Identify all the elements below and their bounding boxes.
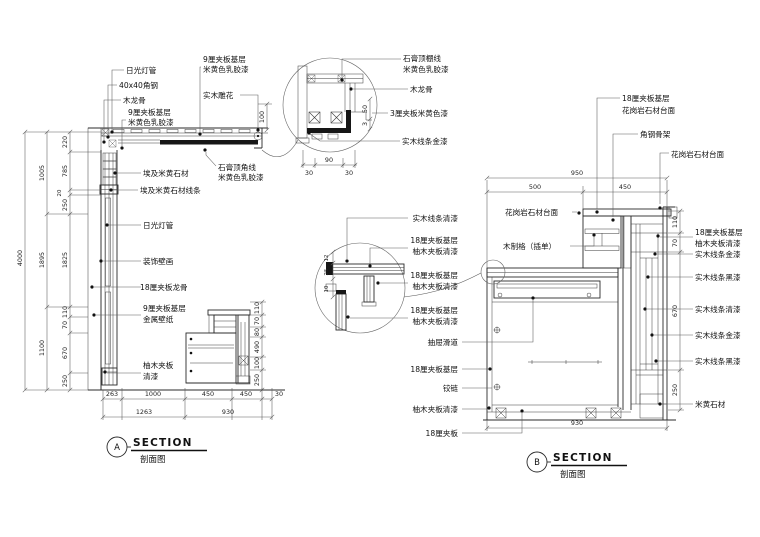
dim-1100: 1100 xyxy=(38,340,46,356)
section-b-subtitle: 剖面图 xyxy=(560,469,586,480)
callout-gypsum-corner-1: 石膏顶角线 xyxy=(218,162,256,172)
callout-gypsum-ceiling-line-1: 石膏顶棚线 xyxy=(403,53,441,63)
dim-detail-30a: 30 xyxy=(305,169,313,177)
callout-b-r-molding-black-2: 实木线条黑漆 xyxy=(695,356,741,366)
callout-clear-varnish: 清漆 xyxy=(143,371,159,381)
callout-plywood9-1a: 9厘夹板基层 xyxy=(128,107,171,117)
callout-b-granite-top-right: 花岗岩石材台面 xyxy=(671,149,725,159)
callout-b-r-teak-clear: 柚木夹板清漆 xyxy=(695,238,741,248)
callout-b-plywood18-granite-2: 花岗岩石材台面 xyxy=(622,105,676,115)
dim-b-250: 250 xyxy=(671,384,679,396)
callout-egypt-stone-trim: 埃及米黄石材线条 xyxy=(140,185,201,195)
dim-263: 263 xyxy=(106,390,118,398)
section-a-bubble-letter: A xyxy=(114,443,120,453)
callout-plywood9-3a: 9厘夹板基层 xyxy=(143,303,186,313)
dim-450-b: 450 xyxy=(240,390,252,398)
gypsum-cove-band xyxy=(160,140,258,145)
callout-b-r-beige-stone: 米黄石材 xyxy=(695,399,726,409)
callout-b-teak-clear: 柚木夹板清漆 xyxy=(412,404,458,414)
callout-b-granite-top-left: 花岗岩石材台面 xyxy=(505,207,559,217)
callout-plywood9-2b: 米黄色乳胶漆 xyxy=(203,64,249,74)
callout-angle-steel: 40x40角钢 xyxy=(119,80,158,90)
dim-cab-490: 490 xyxy=(253,341,261,353)
dim-cab-80: 80 xyxy=(253,328,261,336)
dim-20: 20 xyxy=(57,189,63,196)
callout-b-r-molding-gold-2: 实木线条金漆 xyxy=(695,330,741,340)
callout-egypt-stone: 埃及米黄石材 xyxy=(143,168,189,178)
callout-b-plywood18-teak-2b: 柚木夹板清漆 xyxy=(412,281,458,291)
callout-fluorescent-lamp: 日光灯管 xyxy=(126,65,157,75)
dim-1825: 1825 xyxy=(61,252,69,268)
dim-930-b: 930 xyxy=(571,419,583,427)
dim-930-a: 930 xyxy=(222,408,234,416)
dim-detail-b-10: 10 xyxy=(324,285,330,292)
dim-500: 500 xyxy=(529,183,541,191)
dim-1000: 1000 xyxy=(145,390,161,398)
technical-drawing-page: 4000 1005 1895 1100 220 785 20 250 1825 … xyxy=(0,0,760,537)
dim-detail-b-25: 25 xyxy=(324,269,330,276)
dim-total-4000: 4000 xyxy=(16,250,24,266)
callout-b-wood-molding-clear: 实木线条清漆 xyxy=(412,213,458,223)
dim-220: 220 xyxy=(61,136,69,148)
section-a-title: SECTION xyxy=(133,437,193,449)
callout-plywood3-beige: 3厘夹板米黄色漆 xyxy=(390,108,448,118)
dim-250-upper: 250 xyxy=(61,199,69,211)
dim-1263: 1263 xyxy=(136,408,152,416)
callout-plywood9-2a: 9厘夹板基层 xyxy=(203,54,246,64)
dim-b-670: 670 xyxy=(671,305,679,317)
callout-b-plywood18-teak-3a: 18厘夹板基层 xyxy=(410,305,458,315)
callout-wood-keel-detail: 木龙骨 xyxy=(410,84,433,94)
section-a-subtitle: 剖面图 xyxy=(140,454,166,465)
dim-detail-b-12: 12 xyxy=(324,255,330,262)
dim-1005: 1005 xyxy=(38,165,46,181)
dim-250-wall: 250 xyxy=(61,375,69,387)
callout-wood-keel: 木龙骨 xyxy=(123,95,146,105)
dim-30: 30 xyxy=(275,390,283,398)
dim-450: 450 xyxy=(619,183,631,191)
dim-950: 950 xyxy=(571,169,583,177)
dim-450-a: 450 xyxy=(202,390,214,398)
callout-teak-plywood: 柚木夹板 xyxy=(143,360,174,370)
dim-cab-100: 100 xyxy=(253,357,261,369)
callout-b-r-molding-black-1: 实木线条黑漆 xyxy=(695,272,741,282)
dim-cove-100: 100 xyxy=(258,111,266,123)
callout-wood-carving: 实木雕花 xyxy=(203,90,234,100)
blueprint-canvas: 4000 1005 1895 1100 220 785 20 250 1825 … xyxy=(0,0,760,537)
dim-cab-250: 250 xyxy=(253,374,261,386)
dim-70-wall: 70 xyxy=(61,321,69,329)
callout-gypsum-corner-2: 米黄色乳胶漆 xyxy=(218,172,264,182)
callout-b-r-plywood18: 18厘夹板基层 xyxy=(695,227,743,237)
callout-b-plywood18-teak-3b: 柚木夹板清漆 xyxy=(412,316,458,326)
dim-detail-90: 90 xyxy=(325,156,333,164)
dim-detail-50: 50 xyxy=(361,105,369,113)
dim-110-wall: 110 xyxy=(61,306,69,318)
dim-detail-3: 3 xyxy=(361,122,369,126)
callout-plywood9-1b: 米黄色乳胶漆 xyxy=(128,117,174,127)
dim-785: 785 xyxy=(61,165,69,177)
dim-670-wall: 670 xyxy=(61,347,69,359)
callout-b-plywood18-teak-1a: 18厘夹板基层 xyxy=(410,235,458,245)
callout-gypsum-ceiling-line-2: 米黄色乳胶漆 xyxy=(403,64,449,74)
callout-wood-molding-gold: 实木线条金漆 xyxy=(402,136,448,146)
callout-b-wood-slots: 木制格（插单） xyxy=(503,241,556,251)
dim-cab-110: 110 xyxy=(253,302,261,314)
callout-b-plywood18-teak-1b: 柚木夹板清漆 xyxy=(412,246,458,256)
callout-b-drawer-slide: 抽屉滑道 xyxy=(428,337,459,347)
dim-cab-70: 70 xyxy=(253,317,261,325)
section-b-bubble-letter: B xyxy=(534,458,540,468)
callout-mural: 装饰壁画 xyxy=(143,256,173,266)
callout-plywood9-3b: 金属壁纸 xyxy=(143,314,174,324)
dim-b-110: 110 xyxy=(671,216,679,228)
section-b-title: SECTION xyxy=(553,452,613,464)
callout-b-plywood18-base: 18厘夹板基层 xyxy=(410,364,458,374)
callout-b-angle-steel-frame: 角钢骨架 xyxy=(640,129,671,139)
callout-b-r-molding-clear: 实木线条清漆 xyxy=(695,304,741,314)
callout-b-r-molding-gold-1: 实木线条金漆 xyxy=(695,249,741,259)
callout-b-plywood18-granite-1: 18厘夹板基层 xyxy=(622,93,670,103)
callout-fluorescent-mid: 日光灯管 xyxy=(143,220,174,230)
dim-detail-30b: 30 xyxy=(345,169,353,177)
dim-1895: 1895 xyxy=(38,252,46,268)
callout-plywood18-keel: 18厘夹板龙骨 xyxy=(140,282,188,292)
dim-b-70: 70 xyxy=(671,239,679,247)
callout-b-plywood18-teak-2a: 18厘夹板基层 xyxy=(410,270,458,280)
callout-b-plywood18: 18厘夹板 xyxy=(426,428,459,438)
callout-b-hinge: 铰链 xyxy=(443,383,459,393)
